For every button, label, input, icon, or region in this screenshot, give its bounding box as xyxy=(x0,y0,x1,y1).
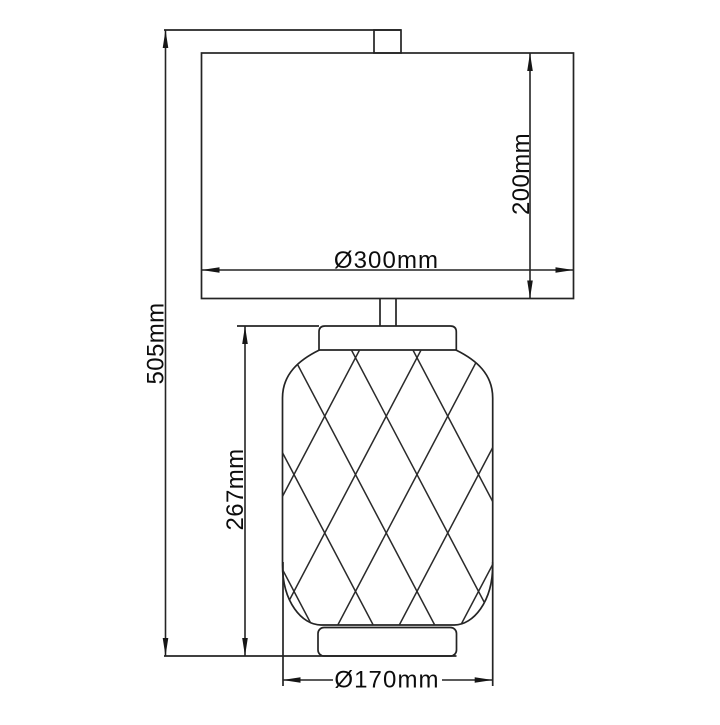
svg-text:200mm: 200mm xyxy=(508,133,535,215)
svg-text:Ø300mm: Ø300mm xyxy=(334,247,439,274)
svg-text:505mm: 505mm xyxy=(143,302,170,384)
svg-text:267mm: 267mm xyxy=(222,448,249,530)
svg-text:Ø170mm: Ø170mm xyxy=(334,667,439,694)
